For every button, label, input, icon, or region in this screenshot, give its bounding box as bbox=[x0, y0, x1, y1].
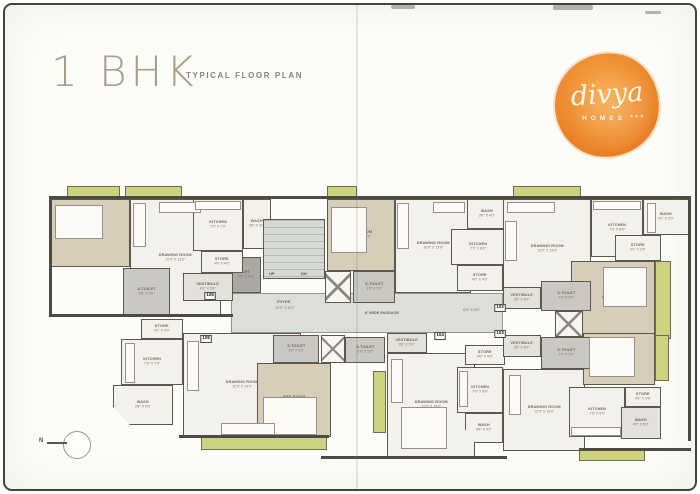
room-label: KITCHEN7'0" X 8'0" bbox=[469, 242, 487, 251]
furniture bbox=[331, 207, 367, 253]
scan-smudge bbox=[391, 5, 415, 9]
room-label: WASH3'6" X 5'0" bbox=[135, 400, 151, 409]
room-label: STORE4'0" X 4'0" bbox=[472, 273, 488, 282]
room-wash: WASH4'0" X 5'0" bbox=[621, 407, 661, 439]
room-label: VESTIBULE3'6" X 5'0" bbox=[511, 293, 534, 302]
furniture bbox=[125, 343, 135, 383]
room-vestibule: VESTIBULE3'6" X 5'0" bbox=[503, 335, 541, 357]
room-label: S.TOILET7'0" X 5'0" bbox=[557, 348, 575, 357]
room-label: WASH3'6" X 4'0" bbox=[479, 209, 495, 218]
room-store: STORE4'0" X 4'0" bbox=[457, 265, 503, 291]
unit-number-104: 104 bbox=[434, 332, 445, 340]
room-label: DRAWING ROOM10'0" X 13'0" bbox=[159, 253, 192, 262]
floor-plan: BED ROOM10'0" X 12'0"DRAWING ROOM10'0" X… bbox=[5, 5, 695, 489]
room-s-toilet: S.TOILET3'6" X 5'0" bbox=[353, 271, 395, 303]
room-s-toilet: S.TOILET7'0" X 5'0" bbox=[541, 281, 591, 311]
room-label: KITCHEN7'0" X 7'0" bbox=[143, 357, 161, 366]
room-label: A.TOILET3'6" X 5'0" bbox=[137, 287, 155, 296]
north-compass-icon bbox=[63, 431, 91, 459]
furniture bbox=[509, 375, 521, 415]
unit-number-106: 106 bbox=[204, 292, 215, 300]
wall-segment bbox=[49, 196, 52, 317]
wall-segment bbox=[49, 314, 233, 317]
room-kitchen: KITCHEN7'0" X 8'0" bbox=[451, 229, 505, 265]
furniture bbox=[133, 203, 146, 247]
wall-segment bbox=[688, 196, 691, 441]
room-store: STORE4'0" X 4'0" bbox=[465, 345, 505, 365]
furniture bbox=[391, 359, 403, 403]
furniture bbox=[195, 201, 241, 210]
room-label: WASH3'6" X 4'0" bbox=[476, 423, 492, 432]
scan-smudge bbox=[645, 11, 661, 14]
room-vestibule: VESTIBULE3'6" X 5'0" bbox=[387, 333, 427, 353]
furniture bbox=[187, 341, 199, 391]
furniture bbox=[401, 407, 447, 449]
scan-smudge bbox=[553, 5, 593, 10]
room-label: STORE4'0" X 4'0" bbox=[477, 350, 493, 359]
room-vestibule: VESTIBULE3'6" X 5'0" bbox=[503, 287, 541, 309]
room-store: STORE4'0" X 4'0" bbox=[141, 319, 183, 339]
furniture bbox=[459, 371, 468, 407]
room-label: DRAWING ROOM11'0" X 13'0" bbox=[531, 244, 564, 253]
room-label: S.TOILET3'6" X 5'0" bbox=[365, 282, 383, 291]
room-label: S.TOILET3'6" X 5'0" bbox=[287, 344, 305, 353]
unit-number-105: 105 bbox=[200, 335, 211, 343]
room-wash: WASH3'6" X 4'0" bbox=[467, 199, 507, 229]
room-label: STORE4'0" X 4'0" bbox=[214, 257, 230, 266]
room-s-toilet: S.TOILET7'0" X 5'0" bbox=[541, 337, 591, 369]
furniture bbox=[397, 203, 409, 249]
room-store: STORE4'0" X 4'0" bbox=[201, 251, 243, 273]
wall-segment bbox=[321, 456, 507, 459]
room-label: STORE4'0" X 4'0" bbox=[154, 324, 170, 333]
furniture bbox=[603, 267, 647, 307]
room-s-toilet: S.TOILET3'6" X 5'0" bbox=[345, 337, 385, 363]
lift-shaft bbox=[321, 335, 345, 363]
furniture bbox=[55, 205, 103, 239]
furniture bbox=[433, 202, 465, 213]
lift-shaft bbox=[555, 311, 583, 337]
scanned-brochure-page: 1 BHK TYPICAL FLOOR PLAN divya HOMES ✶✶✶… bbox=[0, 0, 700, 494]
page-fold-line bbox=[356, 5, 358, 489]
room-label: STORE4'0" X 3'6" bbox=[635, 392, 651, 401]
room-label: S.TOILET7'0" X 5'0" bbox=[557, 291, 575, 300]
room-store: STORE4'0" X 3'6" bbox=[625, 387, 661, 407]
wall-segment bbox=[49, 196, 691, 199]
balcony-strip bbox=[655, 335, 669, 381]
room-label: DRAWING ROOM10'0" X 13'0" bbox=[417, 241, 450, 250]
room-label: KITCHEN7'0" X 8'0" bbox=[471, 385, 489, 394]
room-wash: WASH3'6" X 5'0" bbox=[113, 385, 173, 425]
furniture bbox=[505, 221, 517, 261]
north-label: N bbox=[39, 438, 43, 444]
staircase bbox=[263, 219, 325, 279]
wall-segment bbox=[579, 448, 691, 451]
room-label: WASH4'0" X 5'0" bbox=[633, 418, 649, 427]
room-label: VESTIBULE3'6" X 5'0" bbox=[396, 338, 419, 347]
balcony-strip bbox=[373, 371, 386, 433]
furniture bbox=[507, 202, 555, 213]
furniture bbox=[571, 427, 621, 436]
room-label: VESTIBULE3'6" X 5'0" bbox=[511, 341, 534, 350]
lift-shaft bbox=[325, 271, 351, 303]
balcony-strip bbox=[655, 261, 671, 339]
room-label: DRAWING ROOM10'0" X 14'0" bbox=[226, 380, 259, 389]
room-label: WASH4'0" X 5'0" bbox=[658, 212, 674, 221]
room-label: DRAWING ROOM13'0" X 13'0" bbox=[528, 405, 561, 414]
balcony-strip bbox=[201, 437, 327, 450]
room-label: KITCHEN7'0" X 8'0" bbox=[608, 223, 626, 232]
furniture bbox=[647, 203, 656, 233]
page-border: 1 BHK TYPICAL FLOOR PLAN divya HOMES ✶✶✶… bbox=[3, 3, 697, 491]
furniture bbox=[593, 201, 641, 210]
room-label: KITCHEN7'0" X 7'0" bbox=[209, 220, 227, 229]
unit-number-103: 103 bbox=[494, 330, 505, 338]
furniture bbox=[589, 337, 635, 377]
room-label: S.TOILET3'6" X 5'0" bbox=[356, 345, 374, 354]
room-s-toilet: S.TOILET3'6" X 5'0" bbox=[273, 335, 319, 363]
wall-segment bbox=[179, 435, 329, 438]
furniture bbox=[221, 423, 275, 435]
unit-number-102: 102 bbox=[494, 304, 505, 312]
room-label: STORE4'0" X 3'6" bbox=[630, 243, 646, 252]
room-a-toilet: A.TOILET3'6" X 5'0" bbox=[123, 268, 170, 316]
room-label: VESTIBULE4'0" X 5'0" bbox=[197, 282, 220, 291]
north-arrow-line bbox=[47, 442, 67, 444]
room-store: STORE4'0" X 3'6" bbox=[615, 235, 661, 261]
room-label: KITCHEN7'0" X 8'0" bbox=[588, 407, 606, 416]
